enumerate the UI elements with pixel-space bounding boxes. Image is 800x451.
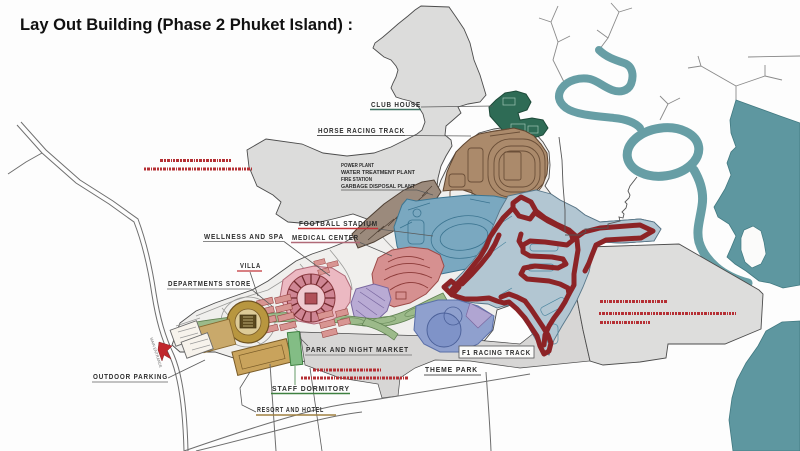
svg-text:MEDICAL CENTER: MEDICAL CENTER — [292, 233, 359, 242]
svg-text:STAFF DORMITORY: STAFF DORMITORY — [272, 384, 350, 393]
svg-text:OUTDOOR PARKING: OUTDOOR PARKING — [93, 372, 168, 381]
svg-text:POWER PLANT: POWER PLANT — [341, 163, 374, 169]
svg-text:WELLNESS AND SPA: WELLNESS AND SPA — [204, 232, 284, 241]
svg-text:THEME PARK: THEME PARK — [425, 365, 478, 374]
svg-text:RESORT AND HOTEL: RESORT AND HOTEL — [257, 405, 324, 414]
svg-text:HORSE RACING TRACK: HORSE RACING TRACK — [318, 126, 405, 135]
svg-text:VILLA: VILLA — [240, 261, 261, 270]
svg-text:Lay Out Building (Phase 2 Phuk: Lay Out Building (Phase 2 Phuket Island)… — [20, 15, 353, 34]
svg-text:F1 RACING TRACK: F1 RACING TRACK — [462, 348, 531, 357]
svg-text:FIRE STATION: FIRE STATION — [341, 177, 372, 183]
svg-text:PARK AND NIGHT MARKET: PARK AND NIGHT MARKET — [306, 345, 409, 354]
svg-text:CLUB HOUSE: CLUB HOUSE — [371, 100, 421, 109]
svg-text:GARBAGE DISPOSAL PLANT: GARBAGE DISPOSAL PLANT — [341, 184, 415, 190]
svg-text:DEPARTMENTS STORE: DEPARTMENTS STORE — [168, 279, 251, 288]
svg-text:FOOTBALL STADIUM: FOOTBALL STADIUM — [299, 219, 378, 228]
svg-text:WATER TREATMENT PLANT: WATER TREATMENT PLANT — [341, 170, 415, 176]
